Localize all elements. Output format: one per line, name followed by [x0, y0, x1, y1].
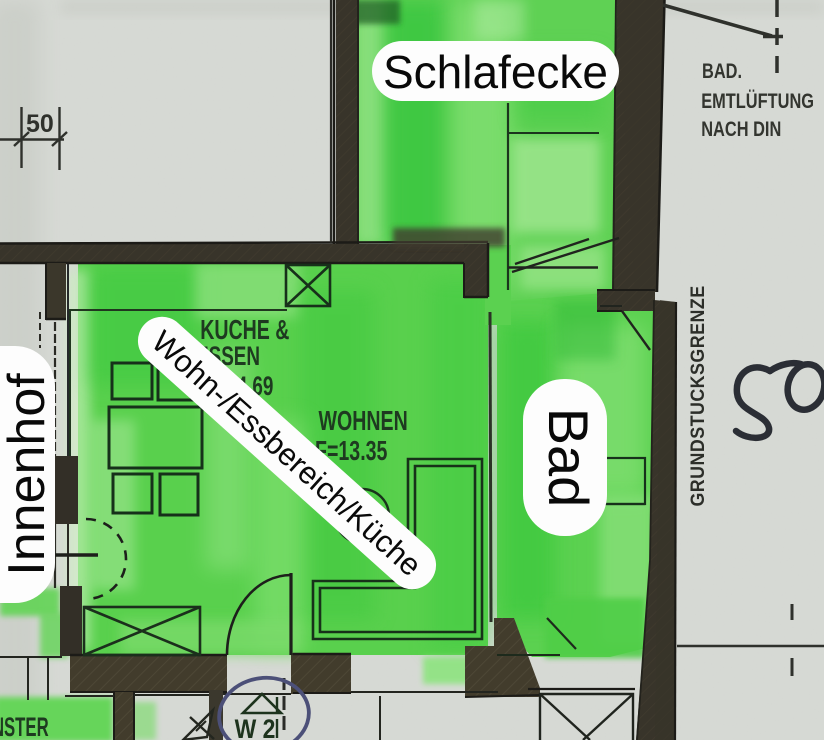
- svg-text:Innenhof: Innenhof: [0, 373, 56, 576]
- svg-text:Schlafecke: Schlafecke: [383, 46, 608, 98]
- svg-text:EMTLÜFTUNG: EMTLÜFTUNG: [701, 89, 814, 112]
- svg-text:Bad: Bad: [537, 408, 600, 508]
- svg-text:W 2: W 2: [235, 714, 276, 740]
- svg-text:GRUNDSTUCKSGRENZE: GRUNDSTUCKSGRENZE: [686, 285, 708, 506]
- svg-text:BAD.: BAD.: [702, 59, 742, 82]
- svg-text:NACH DIN: NACH DIN: [701, 117, 781, 140]
- svg-text:50: 50: [26, 110, 54, 138]
- svg-text:WOHNEN: WOHNEN: [319, 406, 408, 437]
- svg-text:NSTER: NSTER: [0, 712, 49, 740]
